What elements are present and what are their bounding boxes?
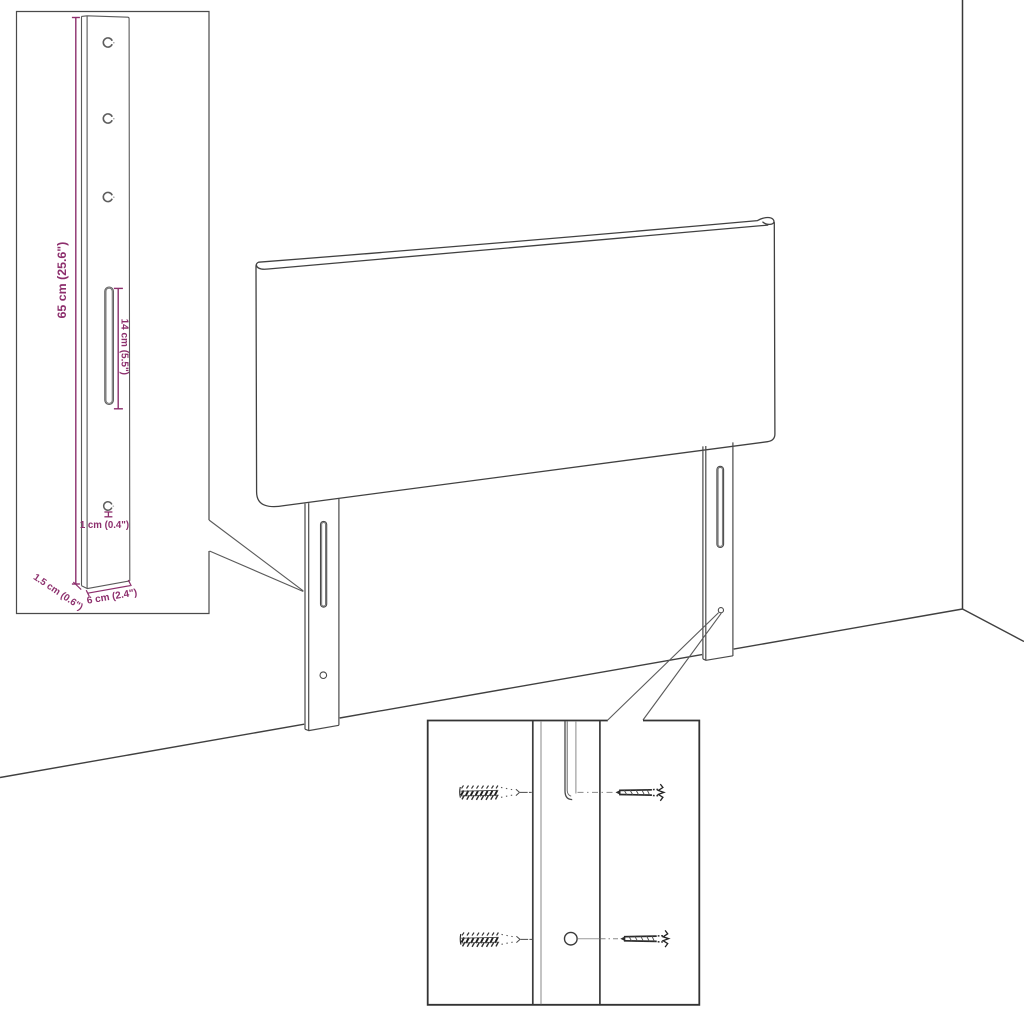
svg-text:1 cm (0.4"): 1 cm (0.4") [80, 520, 129, 531]
svg-text:65 cm (25.6"): 65 cm (25.6") [55, 242, 69, 319]
svg-text:14 cm (5.5"): 14 cm (5.5") [119, 319, 130, 375]
